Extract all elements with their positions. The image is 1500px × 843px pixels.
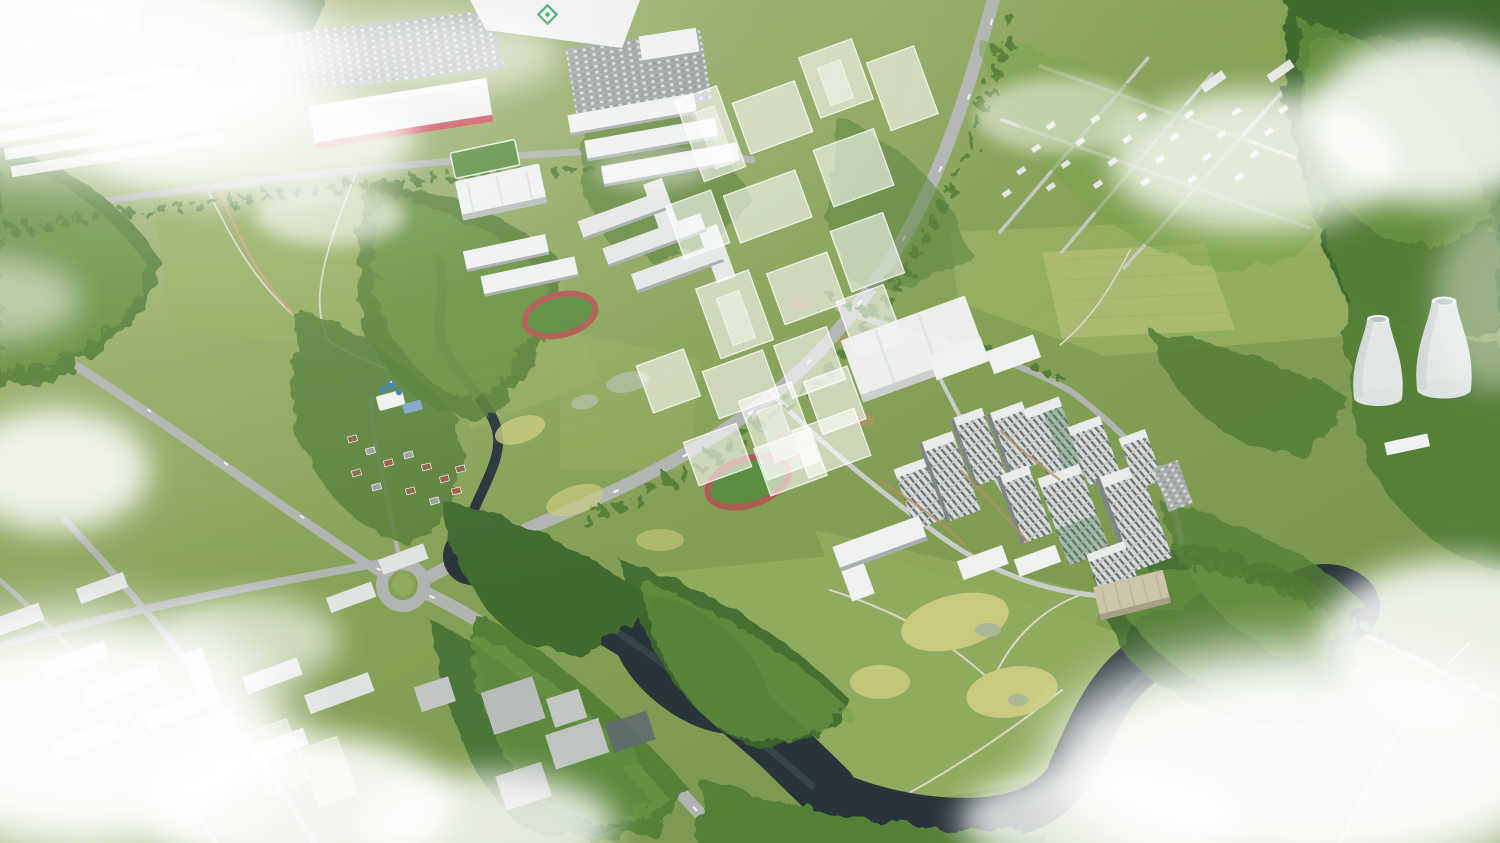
aerial-render bbox=[0, 0, 1500, 843]
render-canvas bbox=[0, 0, 1500, 843]
haze-veil bbox=[0, 0, 1500, 843]
